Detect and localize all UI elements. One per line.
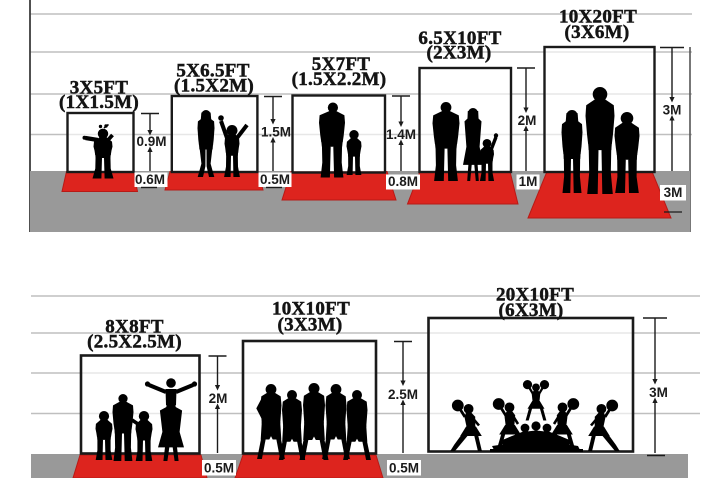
svg-text:(2X3M): (2X3M) [426,43,491,64]
svg-text:0.6M: 0.6M [135,172,165,187]
svg-text:2M: 2M [209,391,228,406]
svg-text:(2.5X2.5M): (2.5X2.5M) [87,332,182,353]
svg-text:0.5M: 0.5M [260,172,290,187]
svg-text:2.5M: 2.5M [388,387,418,402]
svg-text:1.4M: 1.4M [386,127,416,142]
svg-text:3M: 3M [664,185,683,200]
svg-text:(6X3M): (6X3M) [498,300,563,321]
svg-text:0.5M: 0.5M [389,461,419,476]
svg-text:0.8M: 0.8M [388,174,418,189]
svg-text:(3X3M): (3X3M) [277,315,342,336]
svg-text:1M: 1M [519,174,538,189]
svg-text:2M: 2M [518,113,537,128]
svg-text:3M: 3M [663,103,682,118]
svg-text:(1X1.5M): (1X1.5M) [59,92,139,113]
svg-text:3M: 3M [649,385,668,400]
svg-text:(1.5X2M): (1.5X2M) [174,76,254,97]
svg-text:(1.5X2.2M): (1.5X2.2M) [292,69,387,90]
svg-text:1.5M: 1.5M [261,125,291,140]
svg-text:0.5M: 0.5M [204,461,234,476]
svg-text:(3X6M): (3X6M) [564,22,629,43]
svg-text:0.9M: 0.9M [136,134,166,149]
